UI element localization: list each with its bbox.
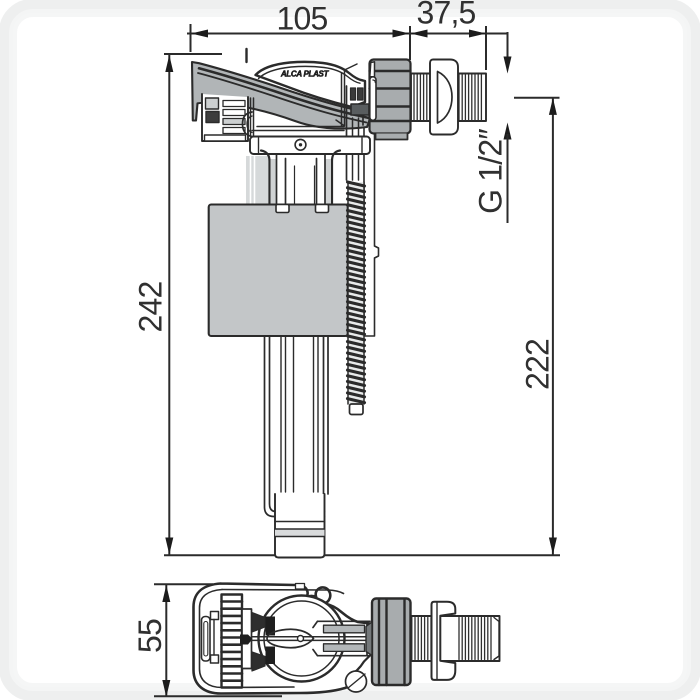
svg-text:G 1/2″: G 1/2″ bbox=[473, 129, 509, 214]
svg-text:ALCA PLAST: ALCA PLAST bbox=[280, 70, 330, 79]
svg-text:55: 55 bbox=[132, 619, 168, 653]
svg-text:105: 105 bbox=[277, 1, 328, 37]
svg-text:37,5: 37,5 bbox=[416, 0, 475, 31]
svg-text:222: 222 bbox=[520, 339, 556, 390]
svg-text:242: 242 bbox=[133, 282, 169, 333]
